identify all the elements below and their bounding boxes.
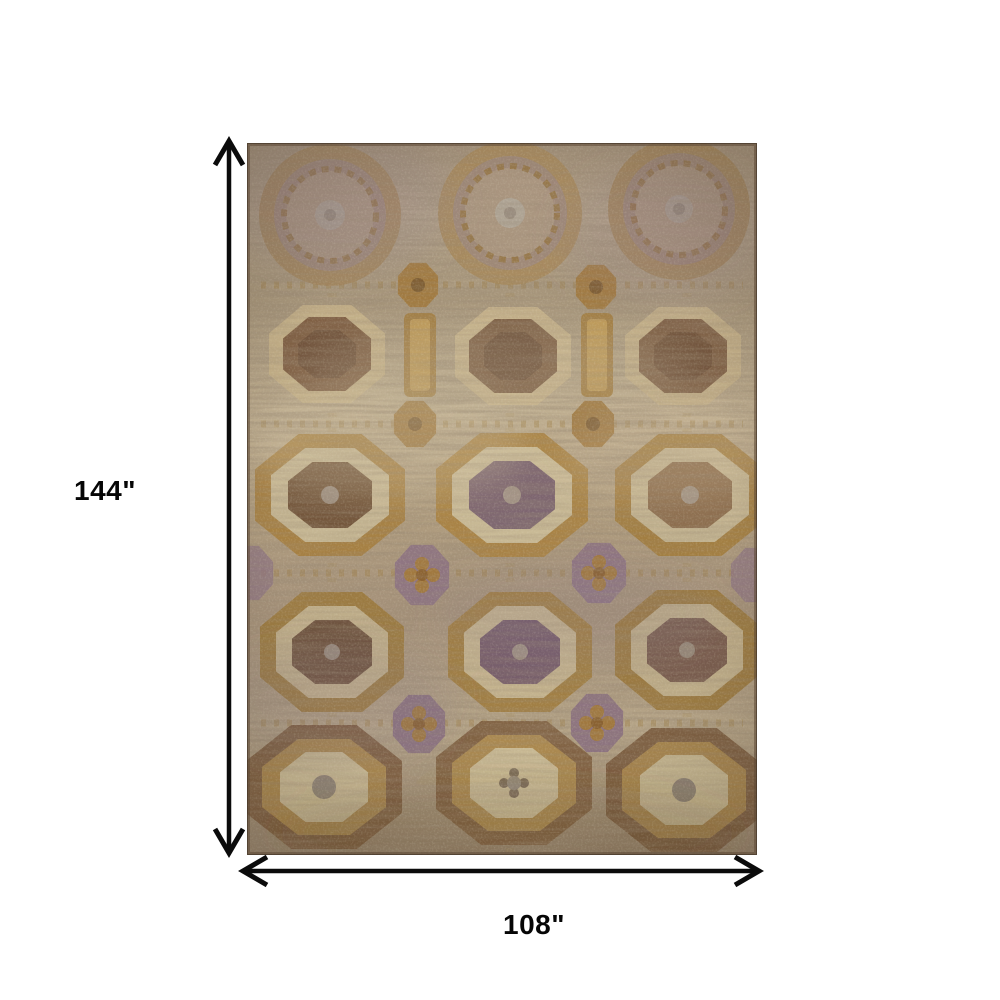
product-image-canvas: 144" 108" bbox=[0, 0, 1000, 1000]
vertical-double-arrow-icon bbox=[215, 141, 243, 853]
height-dimension-arrow bbox=[209, 133, 249, 861]
width-dimension-label: 108" bbox=[481, 909, 587, 941]
width-dimension-arrow bbox=[236, 851, 766, 891]
height-dimension-label: 144" bbox=[52, 475, 158, 507]
rug-image bbox=[247, 143, 757, 855]
rug-artwork bbox=[247, 143, 757, 855]
horizontal-double-arrow-icon bbox=[243, 857, 759, 885]
